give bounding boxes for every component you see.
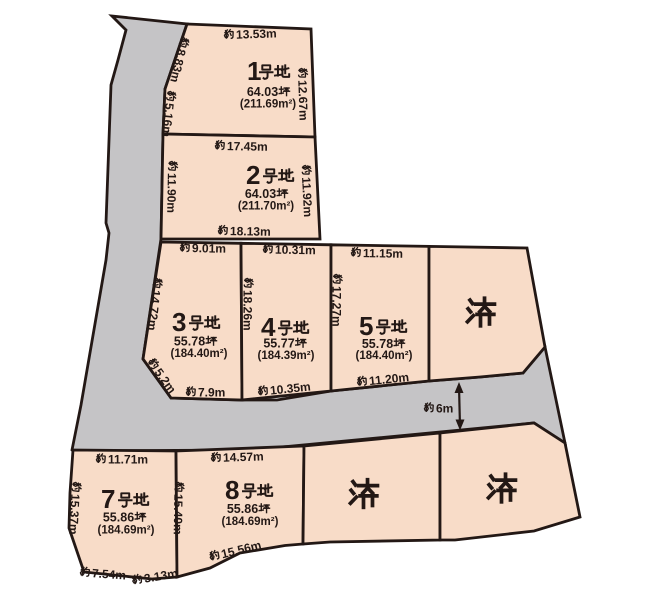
svg-text:55.86: 55.86	[103, 511, 134, 525]
svg-text:64.03: 64.03	[245, 187, 276, 201]
svg-text:18.13m: 18.13m	[230, 224, 271, 239]
svg-text:8: 8	[225, 475, 239, 505]
svg-text:11.92m: 11.92m	[299, 177, 315, 218]
svg-text:13.53m: 13.53m	[236, 26, 277, 41]
svg-text:7.9m: 7.9m	[198, 385, 225, 399]
svg-text:10.31m: 10.31m	[275, 243, 316, 258]
svg-text:(211.70m²): (211.70m²)	[238, 201, 294, 213]
svg-text:11.15m: 11.15m	[363, 246, 403, 261]
svg-text:17.27m: 17.27m	[330, 286, 344, 327]
svg-text:(184.40m²): (184.40m²)	[171, 348, 228, 360]
svg-text:15.37m: 15.37m	[66, 494, 82, 535]
svg-text:7.54m: 7.54m	[92, 566, 127, 582]
svg-text:64.03: 64.03	[247, 85, 278, 99]
svg-text:11.71m: 11.71m	[108, 452, 148, 466]
svg-text:55.86: 55.86	[227, 502, 258, 516]
svg-text:(184.69m²): (184.69m²)	[98, 525, 155, 537]
svg-text:18.26m: 18.26m	[241, 290, 255, 331]
svg-text:9.01m: 9.01m	[192, 241, 226, 256]
svg-text:15.40m: 15.40m	[171, 494, 186, 535]
svg-text:7: 7	[101, 484, 115, 514]
svg-text:11.90m: 11.90m	[164, 173, 179, 213]
svg-text:55.78: 55.78	[362, 337, 393, 351]
svg-text:6m: 6m	[436, 401, 453, 415]
svg-text:(184.40m²): (184.40m²)	[356, 350, 413, 362]
svg-text:3: 3	[172, 307, 186, 337]
svg-text:(184.69m²): (184.69m²)	[222, 516, 279, 528]
svg-text:14.57m: 14.57m	[223, 449, 264, 464]
svg-text:12.67m: 12.67m	[295, 80, 310, 121]
svg-text:17.45m: 17.45m	[227, 139, 268, 154]
svg-text:1: 1	[247, 56, 261, 86]
svg-text:(184.39m²): (184.39m²)	[258, 350, 315, 362]
svg-text:55.77: 55.77	[263, 337, 294, 351]
svg-text:55.78: 55.78	[174, 335, 205, 349]
svg-text:2: 2	[246, 160, 260, 190]
svg-text:(211.69m²): (211.69m²)	[240, 99, 296, 111]
